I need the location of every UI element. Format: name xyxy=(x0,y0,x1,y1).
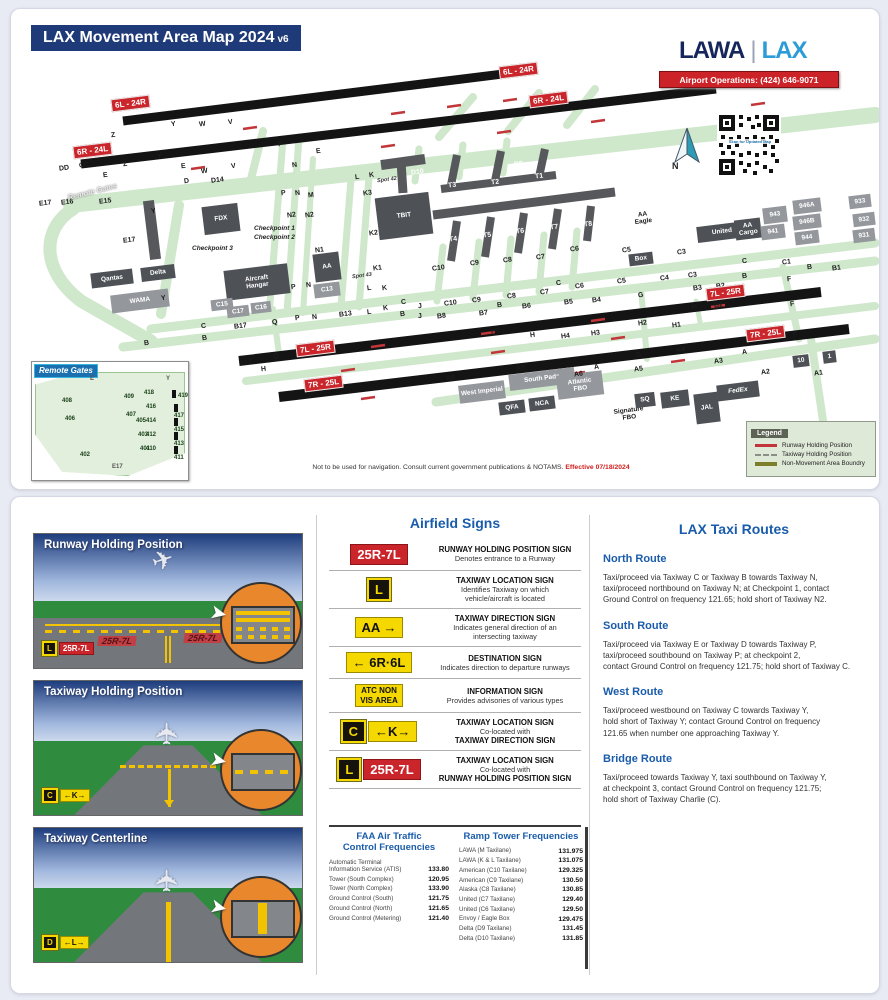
panel-sign: L25R-7L xyxy=(41,638,95,656)
taxi-routes-title: LAX Taxi Routes xyxy=(603,521,865,537)
title-text: LAX Movement Area Map 2024 xyxy=(43,29,274,46)
freq-value: 129.325 xyxy=(558,867,583,874)
lawa-lax-logo: LAWA|LAX xyxy=(679,37,807,65)
sign-red: 25R-7L xyxy=(363,759,420,780)
sign-graphic: AA → xyxy=(329,617,429,638)
freq-label: LAWA (K & L Taxilane) xyxy=(459,857,521,864)
legend-swatch xyxy=(755,462,777,466)
sign-row: L TAXIWAY LOCATION SIGN Identifies Taxiw… xyxy=(329,571,581,609)
sign-graphic: 25R-7L xyxy=(329,544,429,565)
lax-logo: LAX xyxy=(762,37,807,64)
faa-title-line1: FAA Air Traffic xyxy=(356,831,421,842)
airplane-icon: ✈ xyxy=(151,868,186,893)
sign-heading: RUNWAY HOLDING POSITION SIGN xyxy=(429,545,581,554)
sign-heading: TAXIWAY LOCATION SIGN xyxy=(429,576,581,585)
sign-description: INFORMATION SIGN Provides advisories of … xyxy=(429,687,581,705)
sign-graphic: C←K→ xyxy=(329,720,429,743)
freq-label: American (C9 Taxilane) xyxy=(459,877,523,884)
sign-heading: TAXIWAY LOCATION SIGN xyxy=(429,756,581,765)
route-name: South Route xyxy=(603,620,865,632)
legend-box: Legend Runway Holding Position Taxiway H… xyxy=(746,421,876,477)
freq-value: 121.75 xyxy=(428,895,449,902)
sign-description: TAXIWAY DIRECTION SIGN Indicates general… xyxy=(429,614,581,641)
freq-value: 131.45 xyxy=(562,925,583,932)
freq-value: 133.90 xyxy=(428,885,449,892)
freq-row: Ground Control (South) 121.75 xyxy=(329,895,449,902)
remote-gates-apron xyxy=(35,372,185,476)
freq-label: Ground Control (Metering) xyxy=(329,915,401,922)
sign-description: TAXIWAY LOCATION SIGN Identifies Taxiway… xyxy=(429,576,581,603)
sign-yellow: ATC NON VIS AREA xyxy=(355,684,403,706)
panel-title: Taxiway Centerline xyxy=(44,833,147,845)
sign-red: 25R-7L xyxy=(59,642,94,655)
airfield-signs-title: Airfield Signs xyxy=(329,515,581,531)
sign-row: ATC NON VIS AREA INFORMATION SIGN Provid… xyxy=(329,679,581,712)
panel-title: Runway Holding Position xyxy=(44,539,183,551)
sign-black: L xyxy=(337,758,361,781)
route-name: North Route xyxy=(603,553,865,565)
effective-date: Effective 07/18/2024 xyxy=(565,464,629,471)
sign-desc: Co-located with xyxy=(429,765,581,774)
sign-heading: TAXIWAY DIRECTION SIGN xyxy=(429,614,581,623)
faa-title-line2: Control Frequencies xyxy=(343,842,435,853)
freq-row: Ground Control (North) 121.65 xyxy=(329,905,449,912)
freq-value: 131.85 xyxy=(562,935,583,942)
freq-label: American (C10 Taxilane) xyxy=(459,867,527,874)
sign-description: TAXIWAY LOCATION SIGN Co-located with TA… xyxy=(429,718,581,745)
freq-row: Envoy / Eagle Box 129.475 xyxy=(459,915,583,922)
freq-row: American (C9 Taxilane) 130.50 xyxy=(459,877,583,884)
pavement-marking: 25R-7L xyxy=(98,636,137,646)
sign-graphic: L xyxy=(329,578,429,601)
freq-value: 130.50 xyxy=(562,877,583,884)
legend-title: Legend xyxy=(751,429,788,438)
ramp-title: Ramp Tower Frequencies xyxy=(459,831,583,842)
zoom-inset-circle xyxy=(220,582,302,664)
sign-heading: DESTINATION SIGN xyxy=(429,654,581,663)
legend-item: Non-Movement Area Boundry xyxy=(755,460,875,467)
marking-panels: 25R-7L 25R-7L ✈ L25R-7L ➤ Runway Holding… xyxy=(33,533,301,974)
route-text: Taxi/proceed via Taxiway C or Taxiway B … xyxy=(603,572,865,606)
sign-black: L xyxy=(367,578,391,601)
freq-row: LAWA (K & L Taxilane) 131.075 xyxy=(459,857,583,864)
sign-description: DESTINATION SIGN Indicates direction to … xyxy=(429,654,581,672)
freq-value: 121.65 xyxy=(428,905,449,912)
qr-code-icon xyxy=(717,113,781,177)
sign-row: L25R-7L TAXIWAY LOCATION SIGN Co-located… xyxy=(329,751,581,789)
freq-row: Delta (D9 Taxilane) 131.45 xyxy=(459,925,583,932)
sign-heading-2: TAXIWAY DIRECTION SIGN xyxy=(429,736,581,745)
route-name: West Route xyxy=(603,686,865,698)
zoom-inset-marking xyxy=(231,900,294,938)
panel-title: Taxiway Holding Position xyxy=(44,686,182,698)
freq-row: Tower (South Complex) 120.95 xyxy=(329,876,449,883)
lawa-logo: LAWA xyxy=(679,37,744,64)
freq-value: 129.475 xyxy=(558,916,583,923)
freq-row: American (C10 Taxilane) 129.325 xyxy=(459,867,583,874)
route-text: Taxi/proceed via Taxiway E or Taxiway D … xyxy=(603,639,865,673)
freq-value: 130.85 xyxy=(562,886,583,893)
zoom-inset-marking xyxy=(231,753,294,791)
sign-desc: Denotes entrance to a Runway xyxy=(429,554,581,563)
sign-desc: Indicates general direction of an inters… xyxy=(429,623,581,641)
freq-value: 121.40 xyxy=(428,915,449,922)
holding-line xyxy=(120,765,217,768)
airfield-signs-section: Airfield Signs 25R-7L RUNWAY HOLDING POS… xyxy=(329,515,581,789)
taxi-routes-section: LAX Taxi Routes North Route Taxi/proceed… xyxy=(603,521,865,819)
sign-desc: Indicates direction to departure runways xyxy=(429,663,581,672)
compass-label: N xyxy=(672,161,679,171)
freq-value: 133.80 xyxy=(428,866,449,873)
legend-label: Non-Movement Area Boundry xyxy=(782,460,865,467)
freq-label: Automatic Terminal Information Service (… xyxy=(329,859,401,873)
route-text: Taxi/proceed westbound on Taxiway C towa… xyxy=(603,705,865,739)
freq-row: United (C7 Taxilane) 129.40 xyxy=(459,896,583,903)
sign-graphic: L25R-7L xyxy=(329,758,429,781)
sign-heading: INFORMATION SIGN xyxy=(429,687,581,696)
freq-label: Ground Control (South) xyxy=(329,895,393,902)
freq-row: Automatic Terminal Information Service (… xyxy=(329,859,449,873)
freq-label: Tower (South Complex) xyxy=(329,876,394,883)
qr-label: Scan for Updated Map xyxy=(727,139,773,144)
sign-yellow: ←L→ xyxy=(60,936,89,949)
marking-panel: 25R-7L 25R-7L ✈ L25R-7L ➤ Runway Holding… xyxy=(33,533,303,669)
sign-row: ← 6R·6L DESTINATION SIGN Indicates direc… xyxy=(329,647,581,679)
marking-panel: ✈ C←K→ ➤ Taxiway Holding Position xyxy=(33,680,303,816)
sign-yellow: ← 6R·6L xyxy=(346,652,413,673)
sign-yellow: ←K→ xyxy=(60,789,90,802)
info-card: 25R-7L 25R-7L ✈ L25R-7L ➤ Runway Holding… xyxy=(10,496,880,994)
sign-yellow: AA → xyxy=(355,617,404,638)
freq-label: Envoy / Eagle Box xyxy=(459,915,510,922)
version-badge: v6 xyxy=(277,34,288,45)
taxi-route: South Route Taxi/proceed via Taxiway E o… xyxy=(603,620,865,673)
freq-row: Ground Control (Metering) 121.40 xyxy=(329,915,449,922)
sign-row: C←K→ TAXIWAY LOCATION SIGN Co-located wi… xyxy=(329,713,581,751)
sign-black: D xyxy=(42,935,58,950)
sign-desc: Identifies Taxiway on which vehicle/airc… xyxy=(429,585,581,603)
sign-description: TAXIWAY LOCATION SIGN Co-located with RU… xyxy=(429,756,581,783)
freq-label: Delta (D9 Taxilane) xyxy=(459,925,512,932)
zoom-inset-marking xyxy=(231,606,294,644)
freq-label: Ground Control (North) xyxy=(329,905,392,912)
taxi-route: West Route Taxi/proceed westbound on Tax… xyxy=(603,686,865,739)
freq-value: 129.40 xyxy=(562,896,583,903)
disclaimer-text: Not to be used for navigation. Consult c… xyxy=(312,464,563,471)
freq-value: 131.075 xyxy=(558,857,583,864)
legend-item: Taxiway Holding Position xyxy=(755,451,875,458)
holding-line xyxy=(45,624,249,633)
marking-panel: ✈ D←L→ ➤ Taxiway Centerline xyxy=(33,827,303,963)
frequencies-section: FAA Air Traffic Control Frequencies Auto… xyxy=(329,831,583,945)
freq-value: 131.975 xyxy=(558,848,583,855)
centerline-marking xyxy=(168,769,171,807)
sign-yellow: ←K→ xyxy=(368,721,417,742)
legend-label: Taxiway Holding Position xyxy=(782,451,852,458)
sign-graphic: ← 6R·6L xyxy=(329,652,429,673)
legend-item: Runway Holding Position xyxy=(755,442,875,449)
freq-row: LAWA (M Taxilane) 131.975 xyxy=(459,847,583,854)
sign-desc: Provides advisories of various types xyxy=(429,696,581,705)
zoom-inset-circle xyxy=(220,876,302,958)
sign-red: 25R-7L xyxy=(350,544,407,565)
sign-row: 25R-7L RUNWAY HOLDING POSITION SIGN Deno… xyxy=(329,539,581,571)
taxi-route: Bridge Route Taxi/proceed towards Taxiwa… xyxy=(603,753,865,806)
column-divider xyxy=(589,515,590,975)
freq-row: Tower (North Complex) 133.90 xyxy=(329,885,449,892)
panel-sign: D←L→ xyxy=(41,932,90,950)
airplane-icon: ✈ xyxy=(151,721,186,746)
remote-gates-title: Remote Gates xyxy=(34,364,98,378)
route-text: Taxi/proceed towards Taxiway Y, taxi sou… xyxy=(603,772,865,806)
sign-desc: Co-located with xyxy=(429,727,581,736)
column-divider xyxy=(316,515,317,975)
legend-swatch xyxy=(755,444,777,447)
map-disclaimer: Not to be used for navigation. Consult c… xyxy=(231,464,711,471)
legend-swatch xyxy=(755,454,777,456)
freq-label: United (C7 Taxilane) xyxy=(459,896,515,903)
frequency-section-rule xyxy=(329,825,581,827)
faa-frequencies: FAA Air Traffic Control Frequencies Auto… xyxy=(329,831,449,945)
faa-title: FAA Air Traffic Control Frequencies xyxy=(329,831,449,854)
freq-label: Alaska (C8 Taxilane) xyxy=(459,886,516,893)
legend-label: Runway Holding Position xyxy=(782,442,852,449)
sign-black: C xyxy=(42,788,58,803)
freq-label: United (C6 Taxilane) xyxy=(459,906,515,913)
freq-value: 129.50 xyxy=(562,906,583,913)
freq-label: Tower (North Complex) xyxy=(329,885,393,892)
taxi-route: North Route Taxi/proceed via Taxiway C o… xyxy=(603,553,865,606)
sign-row: AA → TAXIWAY DIRECTION SIGN Indicates ge… xyxy=(329,609,581,647)
panel-sign: C←K→ xyxy=(41,785,91,803)
sign-black: L xyxy=(42,641,57,656)
centerline-marking xyxy=(165,636,171,663)
centerline-marking xyxy=(166,902,171,962)
pavement-marking: 25R-7L xyxy=(183,633,222,643)
sign-graphic: ATC NON VIS AREA xyxy=(329,684,429,706)
ramp-frequencies: Ramp Tower Frequencies LAWA (M Taxilane)… xyxy=(449,831,583,945)
freq-label: LAWA (M Taxilane) xyxy=(459,847,511,854)
freq-row: Alaska (C8 Taxilane) 130.85 xyxy=(459,886,583,893)
frequency-section-rule-vertical xyxy=(585,827,588,969)
freq-label: Delta (D10 Taxilane) xyxy=(459,935,515,942)
sign-heading: TAXIWAY LOCATION SIGN xyxy=(429,718,581,727)
ops-banner: Airport Operations: (424) 646-9071 xyxy=(659,71,839,88)
freq-value: 120.95 xyxy=(428,876,449,883)
freq-row: United (C6 Taxilane) 129.50 xyxy=(459,906,583,913)
sign-black: C xyxy=(341,720,366,743)
remote-gates-inset: Remote Gates EY4084094184194164174064074… xyxy=(31,361,189,481)
zoom-inset-circle xyxy=(220,729,302,811)
logo-divider: | xyxy=(750,37,755,64)
page-title: LAX Movement Area Map 2024v6 xyxy=(31,25,301,51)
freq-row: Delta (D10 Taxilane) 131.85 xyxy=(459,935,583,942)
map-card: FDXTBITQantasDeltaWAMAAircraft HangarC15… xyxy=(10,8,880,490)
sign-heading-2: RUNWAY HOLDING POSITION SIGN xyxy=(429,774,581,783)
route-name: Bridge Route xyxy=(603,753,865,765)
sign-description: RUNWAY HOLDING POSITION SIGN Denotes ent… xyxy=(429,545,581,563)
